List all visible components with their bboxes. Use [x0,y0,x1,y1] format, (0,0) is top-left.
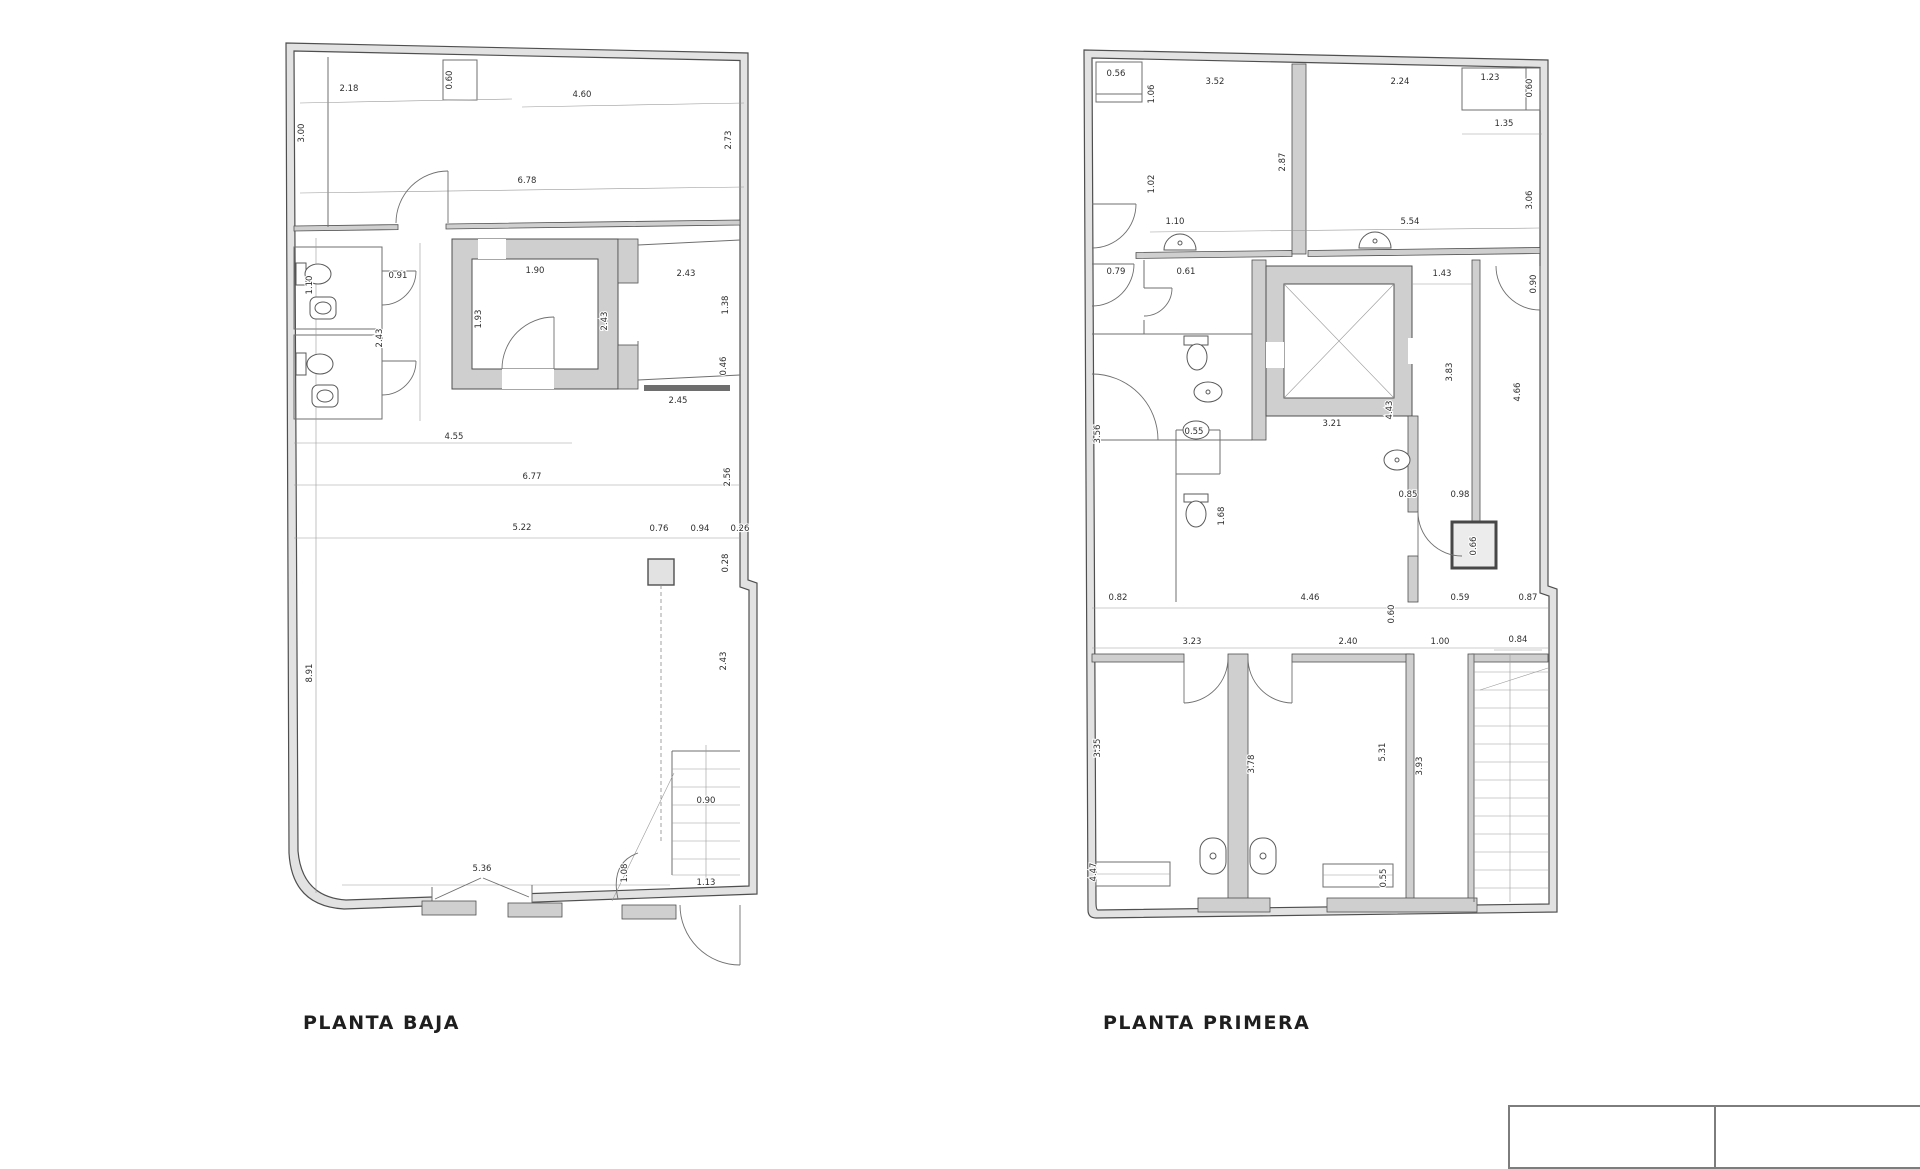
dimension-label: 2.24 [1391,77,1410,87]
dimension-label: 1.00 [1431,637,1450,647]
dimension-label: 0.94 [691,524,710,534]
dimension-label: 0.76 [650,524,669,534]
sink-icon [1194,382,1222,402]
dimension-label: 1.06 [1147,85,1157,104]
wall-sink-icon [1359,232,1391,248]
dimension-label: 3.83 [1445,363,1455,382]
dimension-label: 4.47 [1089,863,1099,882]
dimension-label: 0.84 [1509,635,1528,645]
dimension-label: 3.93 [1415,757,1425,776]
dimension-label: 0.60 [1525,79,1535,98]
dimension-labels: 2.180.604.603.002.736.781.100.912.431.90… [297,71,749,888]
title-block-right-cell [1716,1107,1920,1167]
dimension-label: 3.78 [1247,755,1257,774]
dimension-label: 2.18 [340,84,359,94]
dimension-label: 4.55 [445,432,464,442]
dimension-label: 1.90 [526,266,545,276]
dimension-label: 5.22 [513,523,532,533]
dimension-label: 0.61 [1177,267,1196,277]
dimension-label: 0.26 [731,524,750,534]
stairs [1474,654,1548,902]
title-block-left-cell [1510,1107,1716,1167]
dimension-label: 5.31 [1378,743,1388,762]
wall-sink-icon [1250,838,1276,874]
dimension-label: 0.87 [1519,593,1538,603]
dimension-label: 3.56 [1093,425,1103,444]
dimension-label: 2.43 [719,652,729,671]
stairs [612,745,740,901]
dimension-label: 3.21 [1323,419,1342,429]
dimension-label: 6.77 [523,472,542,482]
dimension-label: 2.43 [677,269,696,279]
dimension-label: 6.78 [518,176,537,186]
doors [382,171,740,965]
dimension-label: 3.23 [1183,637,1202,647]
dimension-label: 0.46 [719,357,729,376]
dimension-label: 2.73 [724,131,734,150]
dimension-label: 1.38 [721,296,731,315]
dimension-label: 0.85 [1399,490,1418,500]
dimension-label: 2.43 [375,329,385,348]
sink-icon [310,297,336,319]
dimension-label: 1.02 [1147,175,1157,194]
dimension-label: 3.06 [1525,191,1535,210]
dimension-label: 0.98 [1451,490,1470,500]
dimension-label: 4.43 [1385,401,1395,420]
dimension-label: 0.60 [1387,605,1397,624]
interior-walls [1092,62,1548,912]
dimension-label: 2.56 [723,468,733,487]
page: { "page": { "background_color": "#ffffff… [0,0,1920,1140]
wall-sink-icon [1200,838,1226,874]
dimension-label: 0.91 [389,271,408,281]
dimension-label: 0.90 [1529,275,1539,294]
dimension-label: 3.00 [297,124,307,143]
dimension-label: 1.10 [305,276,315,295]
dimension-label: 5.36 [473,864,492,874]
dimension-label: 1.35 [1495,119,1514,129]
dimension-label: 2.43 [600,312,610,331]
interior-walls [294,57,740,421]
exterior-walls [286,43,757,909]
plan-title-planta-primera: PLANTA PRIMERA [1103,1012,1310,1034]
bottom-pilasters [422,901,676,919]
dimension-label: 2.45 [669,396,688,406]
toilet-icon [1184,494,1208,527]
dimension-label: 1.23 [1481,73,1500,83]
dimension-label: 5.54 [1401,217,1420,227]
plan-title-planta-baja: PLANTA BAJA [303,1012,460,1034]
dimension-label: 0.66 [1469,537,1479,556]
floor-plan-planta-primera: 0.561.063.522.241.230.601.352.871.023.06… [1080,42,1560,942]
dimension-label: 4.66 [1513,383,1523,402]
dimension-label: 0.59 [1451,593,1470,603]
dimension-lines [294,99,744,893]
toilet-icon [1184,336,1208,370]
wall-sink-icon [1164,234,1196,250]
dimension-label: 2.87 [1278,153,1288,172]
dimension-label: 0.79 [1107,267,1126,277]
dimension-label: 0.82 [1109,593,1128,603]
dimension-label: 4.46 [1301,593,1320,603]
sink-icon [1384,450,1410,470]
title-block [1508,1105,1920,1169]
dimension-label: 4.60 [573,90,592,100]
dimension-label: 1.43 [1433,269,1452,279]
dimension-label: 1.08 [620,864,630,883]
dimension-label: 2.40 [1339,637,1358,647]
dimension-label: 8.91 [305,664,315,683]
dimension-label: 1.68 [1217,507,1227,526]
toilet-icon [296,353,333,375]
dimension-label: 3.52 [1206,77,1225,87]
dimension-label: 0.28 [721,554,731,573]
dimension-label: 0.55 [1185,427,1204,437]
dimension-label: 0.55 [1379,869,1389,888]
dimension-label: 3.35 [1093,739,1103,758]
dimension-label: 0.60 [445,71,455,90]
dimension-label: 1.10 [1166,217,1185,227]
floor-plan-planta-baja: 2.180.604.603.002.736.781.100.912.431.90… [282,33,760,978]
dimension-label: 1.13 [697,878,716,888]
dimension-label: 0.56 [1107,69,1126,79]
sink-icon [312,385,338,407]
dimension-label: 1.93 [474,310,484,329]
dimension-label: 0.90 [697,796,716,806]
